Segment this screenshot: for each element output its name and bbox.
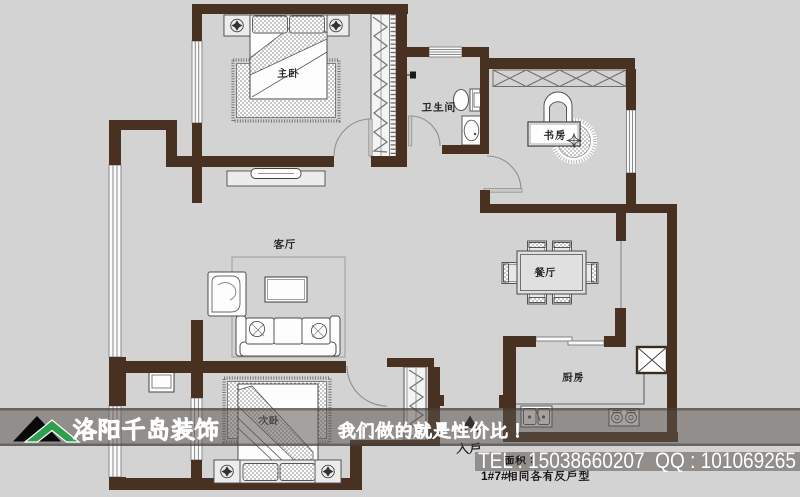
svg-text:TEL : 15038660207 QQ : 101069: TEL : 15038660207 QQ : 101069265 [478,448,796,473]
svg-text:1#7#: 1#7# [481,469,508,483]
